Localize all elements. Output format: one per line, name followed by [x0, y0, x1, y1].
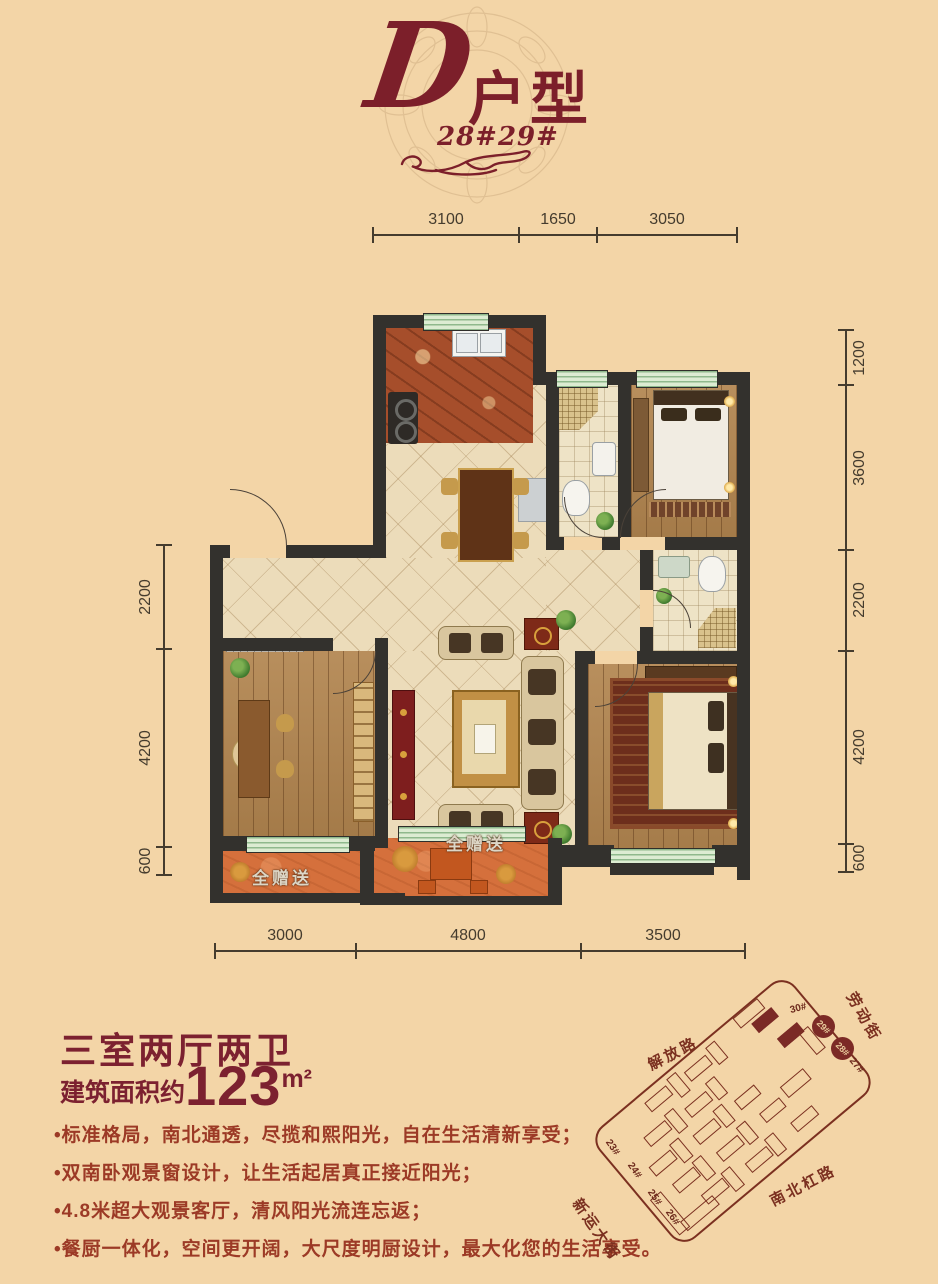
side-table	[524, 618, 559, 650]
kitchen-sink	[452, 329, 506, 357]
dim-label: 2200	[851, 568, 869, 632]
dining-chair	[512, 478, 529, 495]
area-line: 建筑面积约 123 m²	[60, 1062, 312, 1110]
bookshelf	[353, 682, 374, 822]
dining-chair	[441, 532, 458, 549]
balcony-stool	[418, 880, 436, 894]
window-kitchen	[423, 313, 489, 331]
area-prefix: 建筑面积约	[60, 1081, 185, 1110]
poster-page: D 户型 28#29# 3100 1650 3050 3000 4800 350…	[0, 0, 938, 1284]
autumn-plant-icon	[392, 846, 418, 872]
feature-list: •标准格局，南北通透，尽揽和熙阳光，自在生活清新享受； •双南卧观景窗设计，让生…	[54, 1120, 662, 1272]
dim-label: 2200	[137, 565, 155, 629]
gift-label-left: 全赠送	[252, 864, 312, 889]
dim-label: 3000	[245, 927, 325, 945]
dim-label: 1200	[851, 326, 869, 390]
window-bedroom-north	[636, 370, 718, 388]
desk-chair	[276, 760, 294, 778]
dim-label: 3600	[851, 436, 869, 500]
flourish-icon	[396, 148, 536, 178]
dim-label: 1650	[518, 211, 598, 229]
dim-label: 4200	[851, 715, 869, 779]
lamp-icon	[724, 482, 735, 493]
feature-item: •标准格局，南北通透，尽揽和熙阳光，自在生活清新享受；	[54, 1120, 662, 1147]
dining-chair	[512, 532, 529, 549]
dim-label: 600	[137, 829, 155, 893]
area-value: 123	[185, 1062, 281, 1110]
bath-sink	[658, 556, 690, 578]
window-study	[246, 836, 350, 853]
plant-icon	[556, 610, 576, 630]
lamp-icon	[724, 396, 735, 407]
toilet	[698, 556, 726, 592]
dining-chair	[441, 478, 458, 495]
area-unit: m²	[281, 1067, 312, 1110]
bed-master	[648, 692, 739, 810]
door-arc-entry	[230, 489, 287, 546]
dim-label: 4800	[428, 927, 508, 945]
autumn-plant-icon	[230, 862, 250, 882]
window-bath-north	[556, 370, 608, 388]
bath-sink	[592, 442, 616, 476]
feature-item: •餐厨一体化，空间更开阔，大尺度明厨设计，最大化您的生活享受。	[54, 1234, 662, 1261]
dining-table	[458, 468, 514, 562]
highlight-badge-28: 28#	[831, 1037, 854, 1060]
sofa-main	[521, 656, 564, 810]
dim-label: 600	[851, 826, 869, 890]
window-bedroom-master	[610, 848, 716, 864]
highlight-badge-29: 29#	[812, 1015, 835, 1038]
tv-cabinet	[392, 690, 415, 820]
balcony-stool	[470, 880, 488, 894]
bed-north	[653, 390, 729, 500]
hall-corridor	[546, 550, 640, 651]
desk	[238, 700, 270, 798]
street-laodong: 劳动街	[842, 988, 887, 1045]
dim-label: 4200	[137, 716, 155, 780]
plant-icon	[230, 658, 250, 678]
coffee-table	[452, 690, 520, 788]
dim-label: 3050	[627, 211, 707, 229]
feature-item: •双南卧观景窗设计，让生活起居真正接近阳光；	[54, 1158, 662, 1185]
desk-chair	[276, 714, 294, 732]
dim-label: 3100	[406, 211, 486, 229]
sofa-loveseat	[438, 626, 514, 660]
dim-label: 3500	[623, 927, 703, 945]
wardrobe	[633, 398, 649, 492]
gift-label-center: 全赠送	[446, 830, 506, 855]
autumn-plant-icon	[496, 864, 516, 884]
stove	[388, 392, 418, 444]
